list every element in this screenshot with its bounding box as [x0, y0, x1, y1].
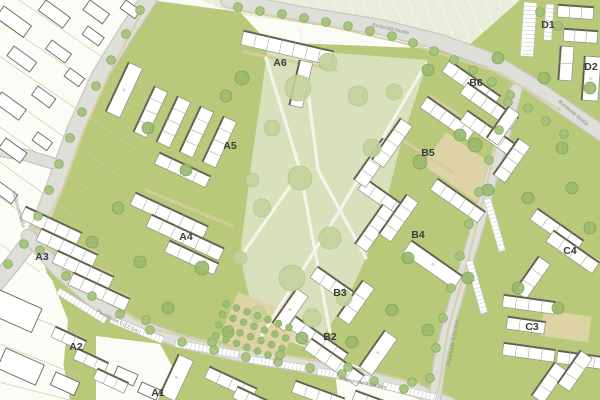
street-tree [122, 30, 131, 39]
zone-label-b3: B3 [333, 287, 347, 299]
orchard-tree [233, 340, 240, 347]
orchard-tree [254, 312, 261, 319]
orchard-tree [244, 344, 251, 351]
street-tree [400, 385, 409, 394]
orchard-tree [237, 329, 244, 336]
street-tree [430, 47, 439, 56]
street-tree [456, 252, 465, 261]
park-tree [363, 139, 381, 157]
new-building [558, 46, 574, 81]
street-tree [409, 39, 418, 48]
tree [566, 182, 578, 194]
street-tree [234, 3, 243, 12]
orchard-tree [251, 323, 258, 330]
orchard-tree [247, 333, 254, 340]
tree [492, 52, 504, 64]
zone-label-d1: D1 [541, 19, 555, 31]
street-tree [45, 186, 54, 195]
tree [162, 302, 174, 314]
tree [296, 332, 308, 344]
street-tree [554, 22, 563, 31]
orchard-tree [258, 337, 265, 344]
street-tree [276, 351, 285, 360]
street-tree [178, 338, 187, 347]
street-tree [469, 66, 478, 75]
map-layers: IIIIIIIIIIIIIIIIIIBuntental-StraßeBunten… [0, 0, 600, 400]
street-tree [432, 344, 441, 353]
street-tree [256, 7, 265, 16]
site-plan-map: IIIIIIIIIIIIIIIIIIBuntental-StraßeBunten… [0, 0, 600, 400]
park-tree [319, 227, 341, 249]
street-tree [485, 156, 494, 165]
street-tree [34, 212, 43, 221]
orchard-tree [286, 324, 293, 331]
orchard-tree [226, 326, 233, 333]
tree [538, 72, 550, 84]
street-tree [78, 108, 87, 117]
street-tree [408, 378, 417, 387]
park-tree [264, 120, 280, 136]
street-tree [4, 260, 13, 269]
zone-label-a3: A3 [35, 251, 49, 263]
park-tree [386, 84, 402, 100]
street-tree [92, 82, 101, 91]
tree [552, 302, 564, 314]
street-tree [300, 14, 309, 23]
street-tree [210, 346, 219, 355]
street-tree [439, 314, 448, 323]
street-tree [136, 6, 145, 15]
park-tree [253, 199, 271, 217]
tree [386, 304, 398, 316]
street-tree [426, 374, 435, 383]
street-tree [55, 160, 64, 169]
orchard-tree [265, 352, 272, 359]
orchard-tree [275, 320, 282, 327]
street-tree [278, 10, 287, 19]
zone-label-b2: B2 [323, 331, 337, 343]
zone-label-a4: A4 [179, 231, 193, 243]
site-plan-canvas: IIIIIIIIIIIIIIIIIIBuntental-StraßeBunten… [0, 0, 600, 400]
orchard-tree [223, 336, 230, 343]
street-tree [142, 316, 151, 325]
orchard-tree [216, 322, 223, 329]
zone-label-d2: D2 [584, 61, 598, 73]
orchard-tree [282, 335, 289, 342]
tree [584, 222, 596, 234]
zone-label-c3: C3 [525, 321, 539, 333]
street-tree [62, 272, 71, 281]
orchard-tree [240, 319, 247, 326]
street-tree [242, 353, 251, 362]
tree [522, 192, 534, 204]
tree [422, 64, 434, 76]
tree [235, 71, 249, 85]
street-tree [475, 188, 484, 197]
orchard-tree [265, 316, 272, 323]
street-tree [495, 126, 504, 135]
tree [512, 282, 524, 294]
street-tree [344, 363, 353, 372]
street-tree [542, 117, 551, 126]
street-tree [107, 56, 116, 65]
orchard-tree [223, 301, 230, 308]
tree [220, 90, 232, 102]
park-tree [288, 166, 312, 190]
tree [142, 122, 154, 134]
zone-label-b6: B6 [469, 77, 483, 89]
zone-label-a2: A2 [69, 341, 83, 353]
street-tree [322, 18, 331, 27]
zone-label-b4: B4 [411, 229, 425, 241]
orchard-tree [230, 315, 237, 322]
tree [134, 256, 146, 268]
tree [468, 138, 482, 152]
zone-label-c4: C4 [563, 245, 577, 257]
park-tree [233, 251, 247, 265]
tree [454, 129, 466, 141]
orchard-tree [233, 305, 240, 312]
street-tree [146, 326, 155, 335]
park-tree [303, 309, 321, 327]
street-tree [504, 98, 513, 107]
tree [112, 202, 124, 214]
street-tree [20, 240, 29, 249]
street-tree [524, 104, 533, 113]
street-tree [88, 292, 97, 301]
park-tree [245, 173, 259, 187]
street-tree [208, 338, 217, 347]
new-building [563, 28, 598, 43]
street-tree [66, 134, 75, 143]
tree [422, 324, 434, 336]
orchard-tree [219, 311, 226, 318]
tree [346, 336, 358, 348]
tree [86, 236, 98, 248]
tree [180, 164, 192, 176]
street-tree [560, 130, 569, 139]
street-tree [536, 8, 545, 17]
zone-label-b5: B5 [421, 147, 435, 159]
tree [402, 252, 414, 264]
new-building [557, 4, 594, 19]
zone-label-a5: A5 [223, 140, 237, 152]
park-tree [279, 265, 305, 291]
orchard-tree [244, 308, 251, 315]
storey-mark: III [589, 77, 592, 81]
orchard-tree [272, 331, 279, 338]
orchard-tree [268, 341, 275, 348]
park-tree [348, 86, 368, 106]
park-tree [319, 53, 337, 71]
tree [462, 272, 474, 284]
street-tree [488, 78, 497, 87]
orchard-tree [261, 327, 268, 334]
street-tree [306, 364, 315, 373]
zone-label-a1: A1 [151, 387, 165, 399]
orchard-tree [254, 348, 261, 355]
tree [482, 184, 494, 196]
street-tree [344, 22, 353, 31]
street-tree [450, 56, 459, 65]
tree [195, 261, 209, 275]
tree [556, 142, 568, 154]
street-tree [465, 220, 474, 229]
zone-label-a6: A6 [273, 57, 287, 69]
park-tree [285, 75, 311, 101]
tree [584, 82, 596, 94]
street-tree [447, 284, 456, 293]
